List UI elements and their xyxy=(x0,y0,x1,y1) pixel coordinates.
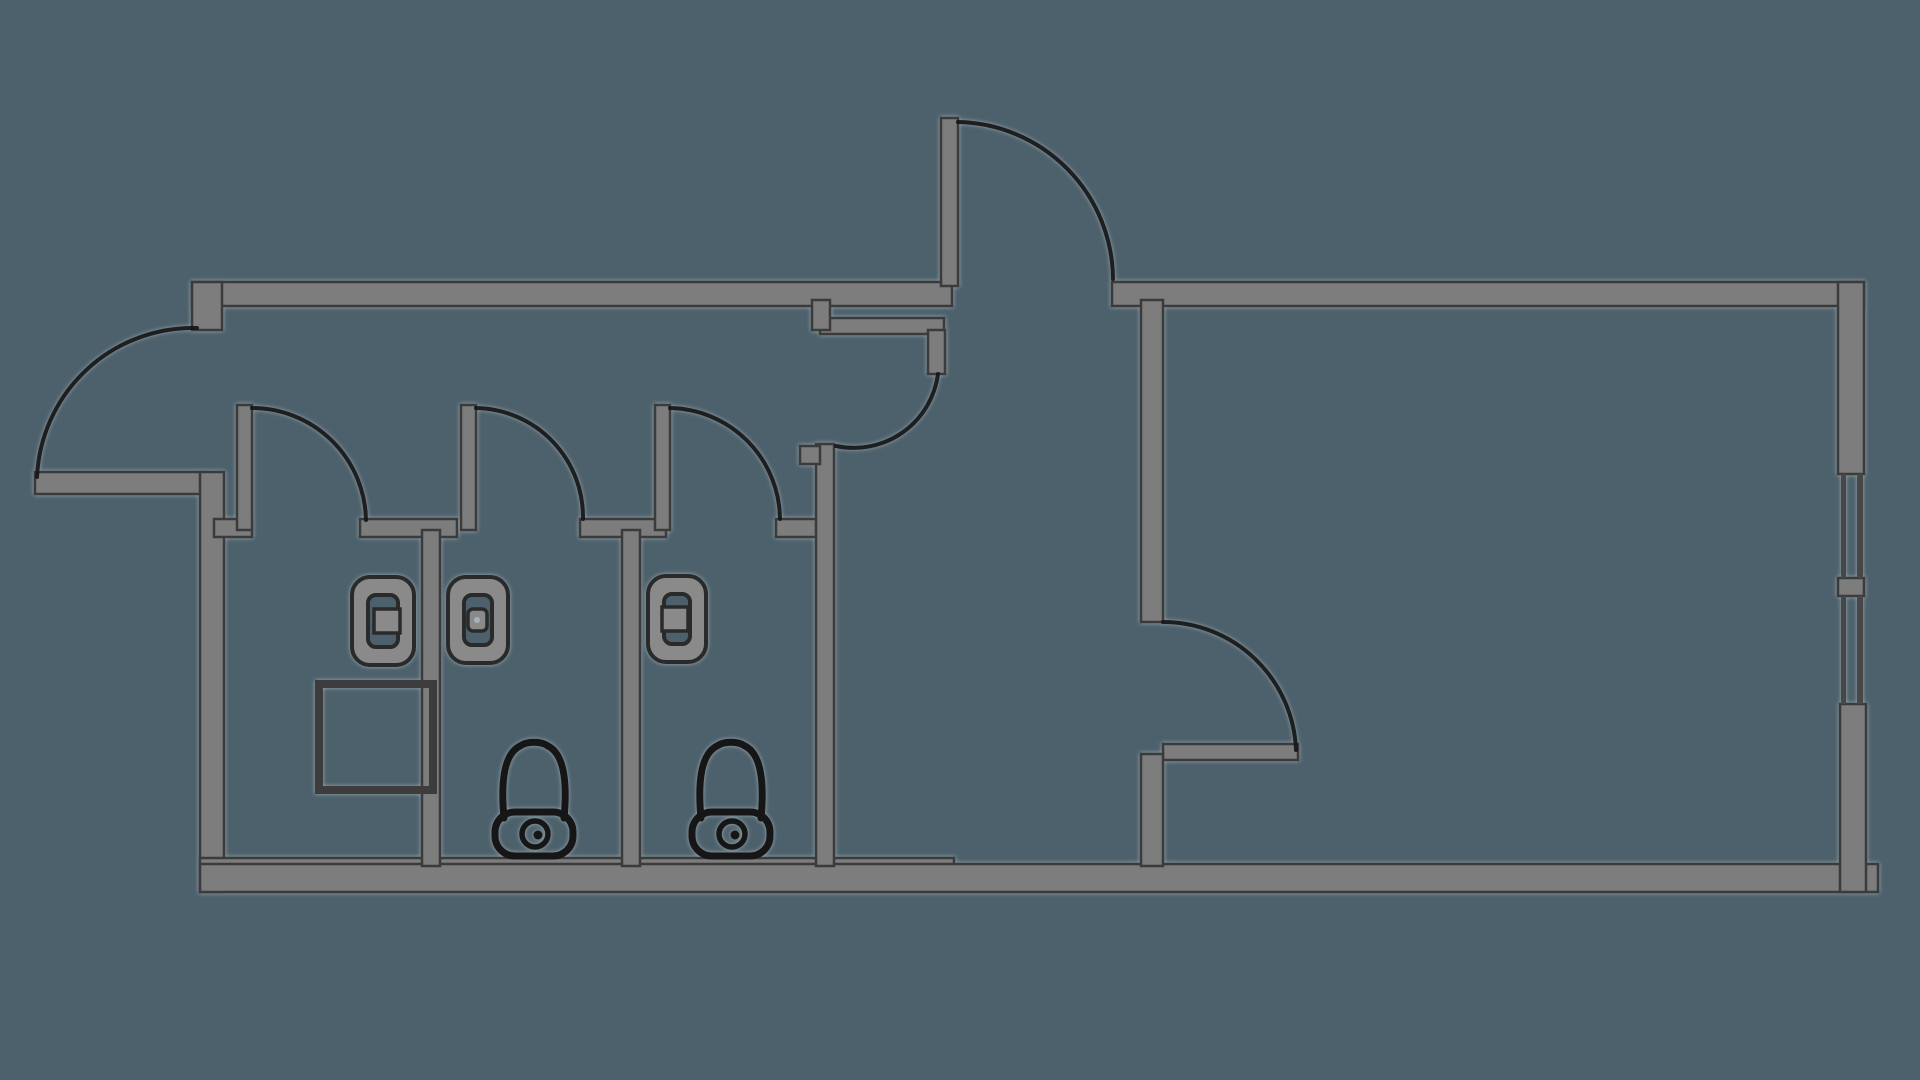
toilet-bowl xyxy=(700,742,762,818)
room-left-wall-lower xyxy=(1141,754,1163,866)
stall-door-leaf-1 xyxy=(237,405,252,530)
sink-3-icon xyxy=(648,576,706,662)
entrance-jamb-west xyxy=(192,282,222,330)
floor-plan xyxy=(0,0,1920,1080)
north-entrance-door-arc xyxy=(958,122,1113,279)
window-pane-line xyxy=(1857,474,1863,578)
bottom-outer-wall xyxy=(200,864,1878,892)
floor-plan-canvas xyxy=(0,0,1920,1080)
stall-door-arc-3 xyxy=(670,408,780,519)
top-wall-right-section xyxy=(1112,282,1864,306)
stall-right-wall xyxy=(816,444,834,866)
west-door-leaf xyxy=(35,472,201,494)
toilet-flush-dot xyxy=(731,831,740,840)
sink-faucet-dot xyxy=(474,617,480,623)
hall-door-arc xyxy=(836,374,938,448)
sink-1-icon xyxy=(352,577,414,665)
room-door-leaf xyxy=(1163,744,1298,760)
sink-2-icon xyxy=(448,577,508,663)
stall-door-leaf-2 xyxy=(461,405,476,530)
stall-door-leaf-3 xyxy=(655,405,670,530)
room-door-arc xyxy=(1163,622,1296,750)
stall-door-arc-1 xyxy=(252,408,366,520)
room-left-wall-upper xyxy=(1141,300,1163,622)
sink-faucet xyxy=(374,609,400,633)
stall-right-wall-tab xyxy=(800,446,820,464)
toilet-2-icon xyxy=(692,742,770,856)
window-pane-line xyxy=(1841,474,1846,578)
right-outer-wall-upper xyxy=(1838,282,1864,474)
toilet-1-icon xyxy=(495,742,573,856)
corner-closet xyxy=(319,684,433,790)
stall-door-arc-2 xyxy=(476,408,583,519)
window-pane-line xyxy=(1857,596,1863,704)
plan-layer xyxy=(35,118,1878,892)
north-door-leaf xyxy=(941,118,958,286)
stall-divider-2 xyxy=(622,530,640,866)
right-outer-wall-lower xyxy=(1840,704,1866,892)
hall-partition-top xyxy=(820,318,944,334)
west-entrance-door-arc xyxy=(37,328,197,477)
window-mullion xyxy=(1838,578,1864,596)
window-pane-line xyxy=(1841,596,1846,704)
hall-door-jamb-stub xyxy=(928,330,945,374)
toilet-bowl xyxy=(503,742,565,818)
toilet-flush-dot xyxy=(534,831,543,840)
top-wall-left-section xyxy=(192,282,952,306)
stall-stub-mid-1 xyxy=(360,519,457,537)
hall-partition-notch xyxy=(812,300,830,330)
sink-faucet xyxy=(662,607,688,631)
